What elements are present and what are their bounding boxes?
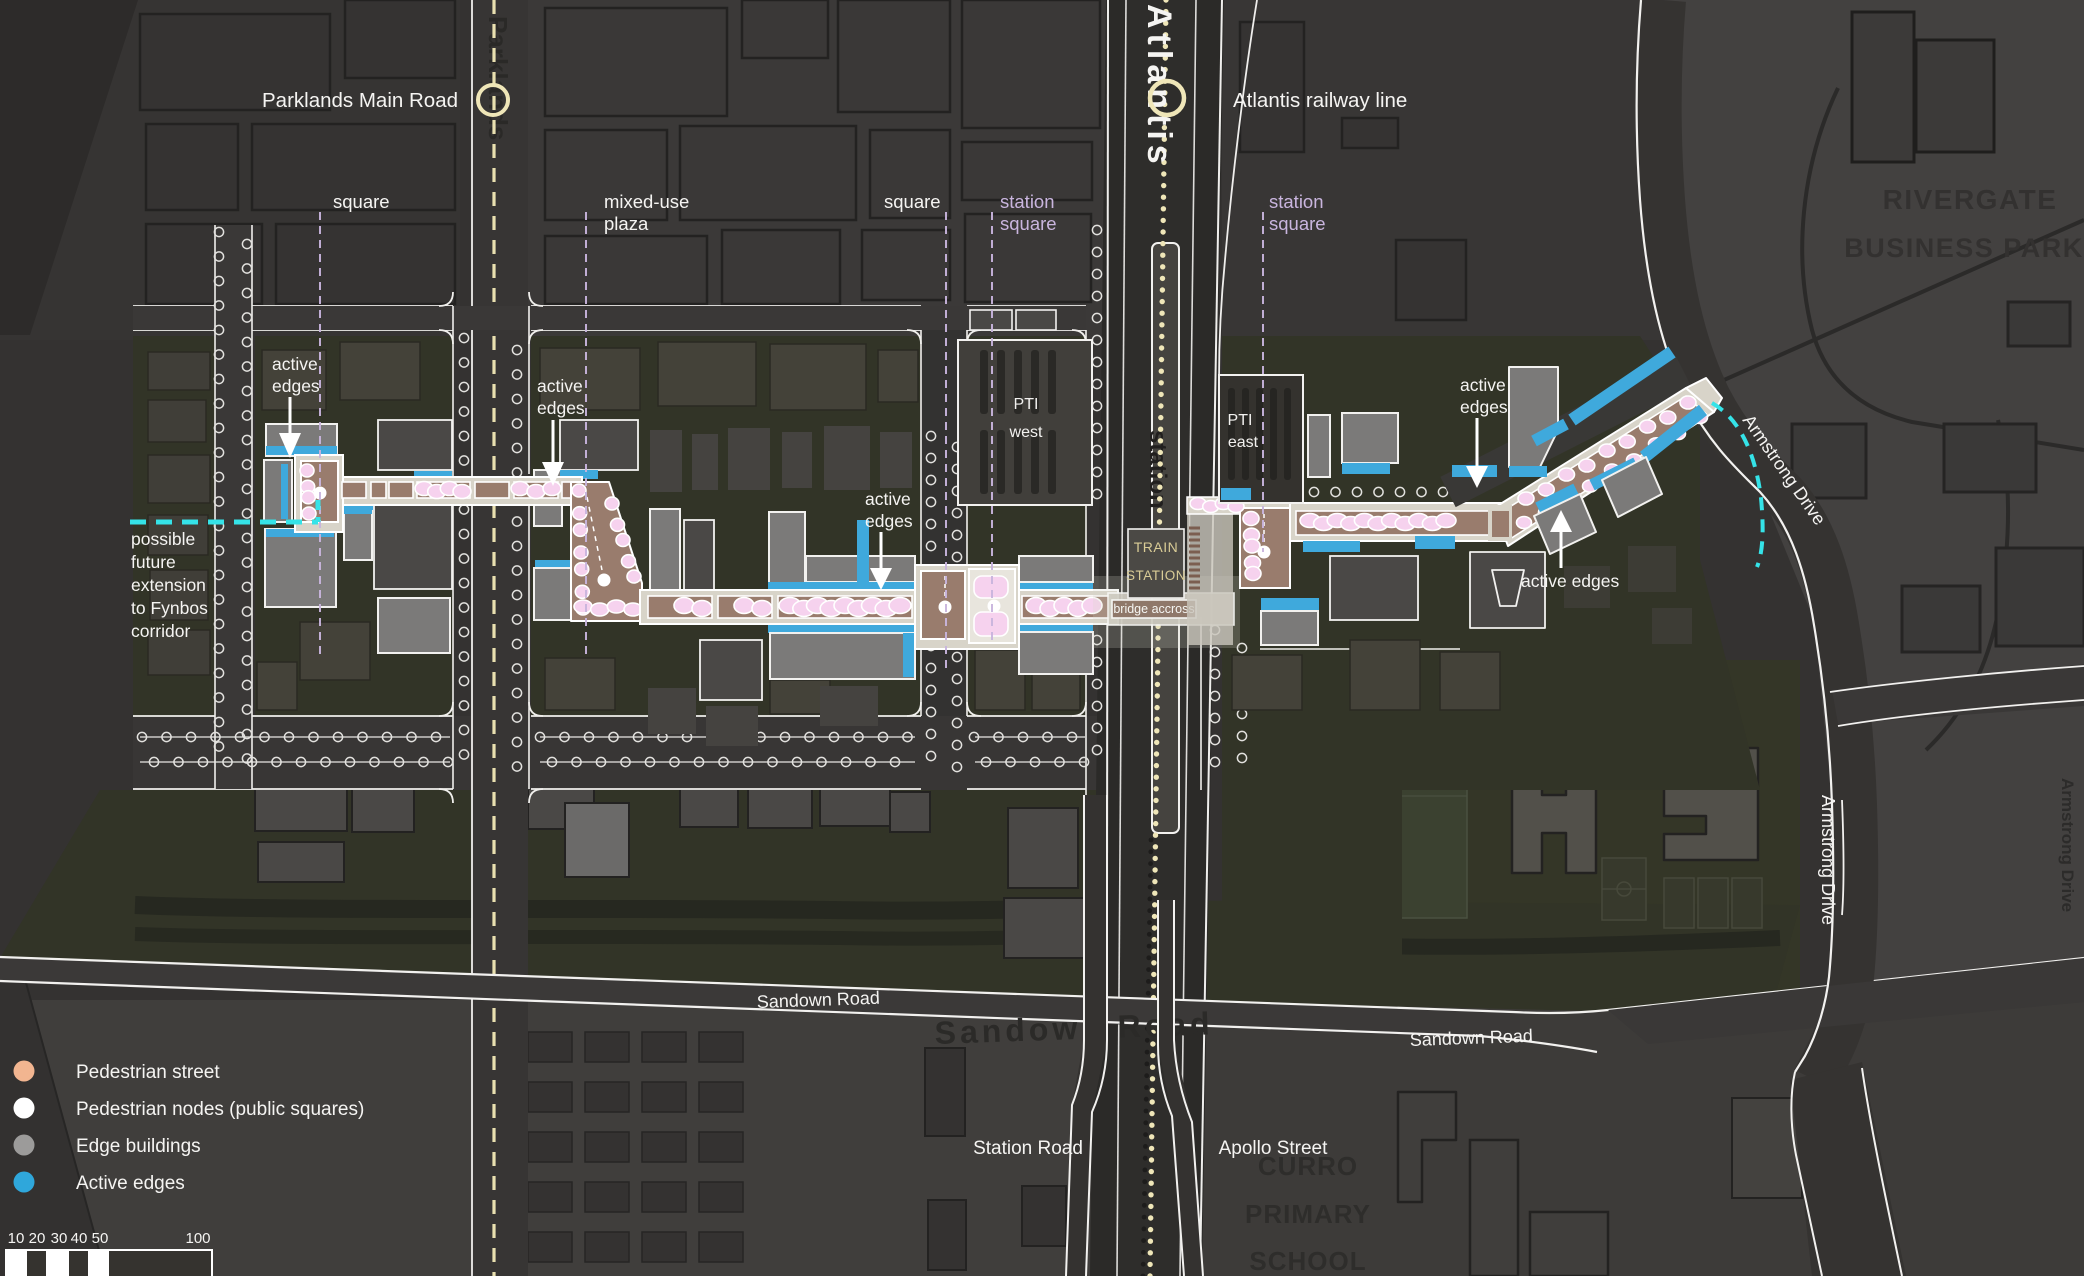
svg-text:west: west	[1009, 424, 1043, 441]
svg-text:SCHOOL: SCHOOL	[1249, 1246, 1366, 1276]
svg-text:PRIMARY: PRIMARY	[1245, 1199, 1371, 1229]
svg-text:active: active	[537, 376, 583, 396]
svg-text:edges: edges	[865, 511, 913, 531]
svg-text:edges: edges	[537, 398, 585, 418]
svg-text:possible: possible	[131, 529, 195, 549]
svg-text:Parklands: Parklands	[483, 16, 513, 140]
svg-text:20: 20	[29, 1230, 46, 1247]
svg-text:40: 40	[71, 1230, 88, 1247]
svg-text:BUSINESS PARK: BUSINESS PARK	[1844, 233, 2084, 263]
svg-text:square: square	[1269, 213, 1326, 234]
svg-text:50: 50	[92, 1230, 109, 1247]
svg-text:Active edges: Active edges	[76, 1173, 185, 1194]
svg-text:square: square	[333, 191, 390, 212]
svg-text:Armstrong Drive: Armstrong Drive	[1818, 795, 1838, 925]
svg-text:extension: extension	[131, 575, 206, 595]
svg-text:edges: edges	[1460, 397, 1508, 417]
svg-text:station: station	[1269, 191, 1324, 212]
svg-text:Atlantis: Atlantis	[1140, 4, 1178, 169]
svg-text:active: active	[272, 354, 318, 374]
svg-text:active edges: active edges	[1521, 571, 1620, 591]
svg-text:PTI: PTI	[1228, 412, 1253, 429]
svg-text:square: square	[884, 191, 941, 212]
svg-text:TRAIN: TRAIN	[1134, 539, 1179, 555]
svg-text:station: station	[1000, 191, 1055, 212]
svg-text:station: station	[1144, 430, 1171, 509]
svg-text:Atlantis railway line: Atlantis railway line	[1233, 89, 1407, 112]
svg-text:Station Road: Station Road	[973, 1138, 1083, 1159]
svg-text:active: active	[865, 489, 911, 509]
svg-text:RIVERGATE: RIVERGATE	[1883, 184, 2058, 215]
svg-text:Parklands Main Road: Parklands Main Road	[262, 89, 458, 112]
svg-text:Apollo Street: Apollo Street	[1219, 1138, 1329, 1159]
svg-text:square: square	[1000, 213, 1057, 234]
svg-text:Edge buildings: Edge buildings	[76, 1136, 201, 1157]
svg-text:to Fynbos: to Fynbos	[131, 598, 208, 618]
svg-text:active: active	[1460, 375, 1506, 395]
svg-text:30: 30	[51, 1230, 68, 1247]
svg-text:future: future	[131, 552, 176, 572]
svg-text:mixed-use: mixed-use	[604, 191, 689, 212]
svg-text:Pedestrian nodes (public squar: Pedestrian nodes (public squares)	[76, 1099, 364, 1120]
svg-text:edges: edges	[272, 376, 320, 396]
svg-text:corridor: corridor	[131, 621, 190, 641]
svg-text:PTI: PTI	[1014, 396, 1039, 413]
svg-text:100: 100	[185, 1230, 210, 1247]
svg-text:east: east	[1228, 434, 1259, 451]
svg-text:Pedestrian street: Pedestrian street	[76, 1062, 220, 1083]
svg-text:plaza: plaza	[604, 213, 649, 234]
svg-text:STATION: STATION	[1126, 568, 1186, 583]
svg-text:Armstrong Drive: Armstrong Drive	[2058, 778, 2077, 912]
svg-text:10: 10	[8, 1230, 25, 1247]
